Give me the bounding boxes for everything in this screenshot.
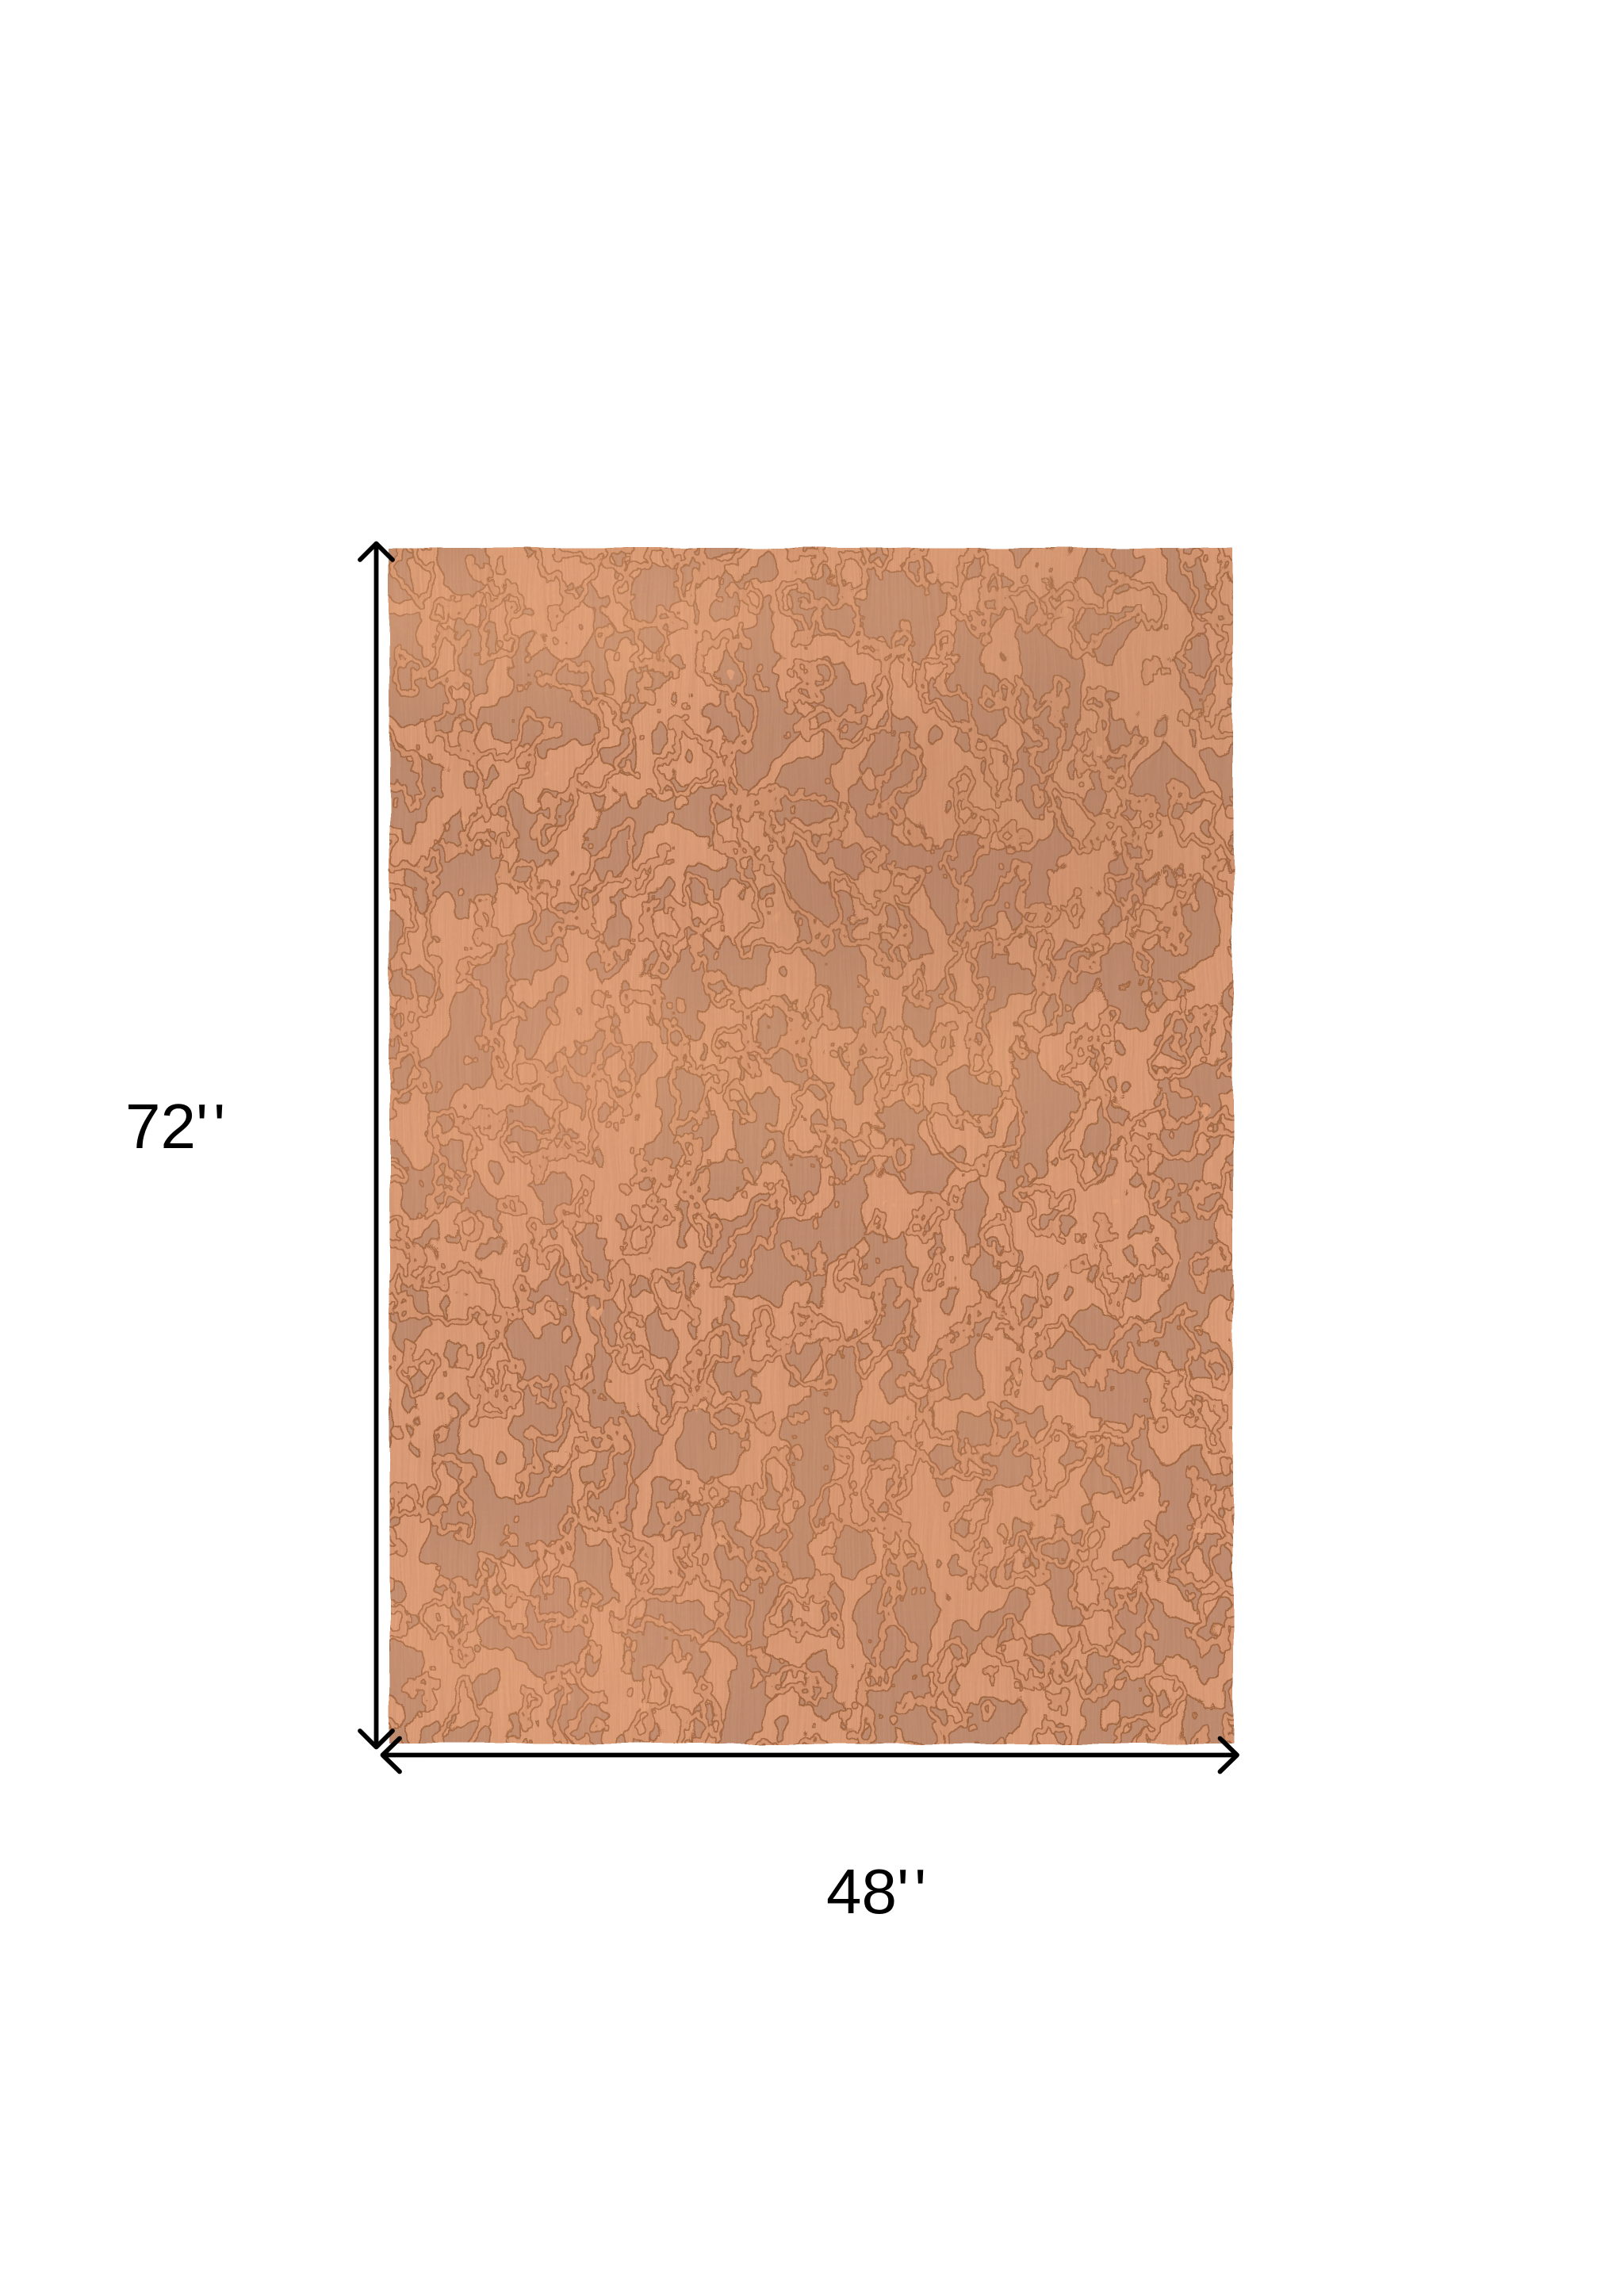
svg-text:72' ': 72' ' (125, 1091, 225, 1162)
svg-text:48' ': 48' ' (826, 1856, 926, 1927)
